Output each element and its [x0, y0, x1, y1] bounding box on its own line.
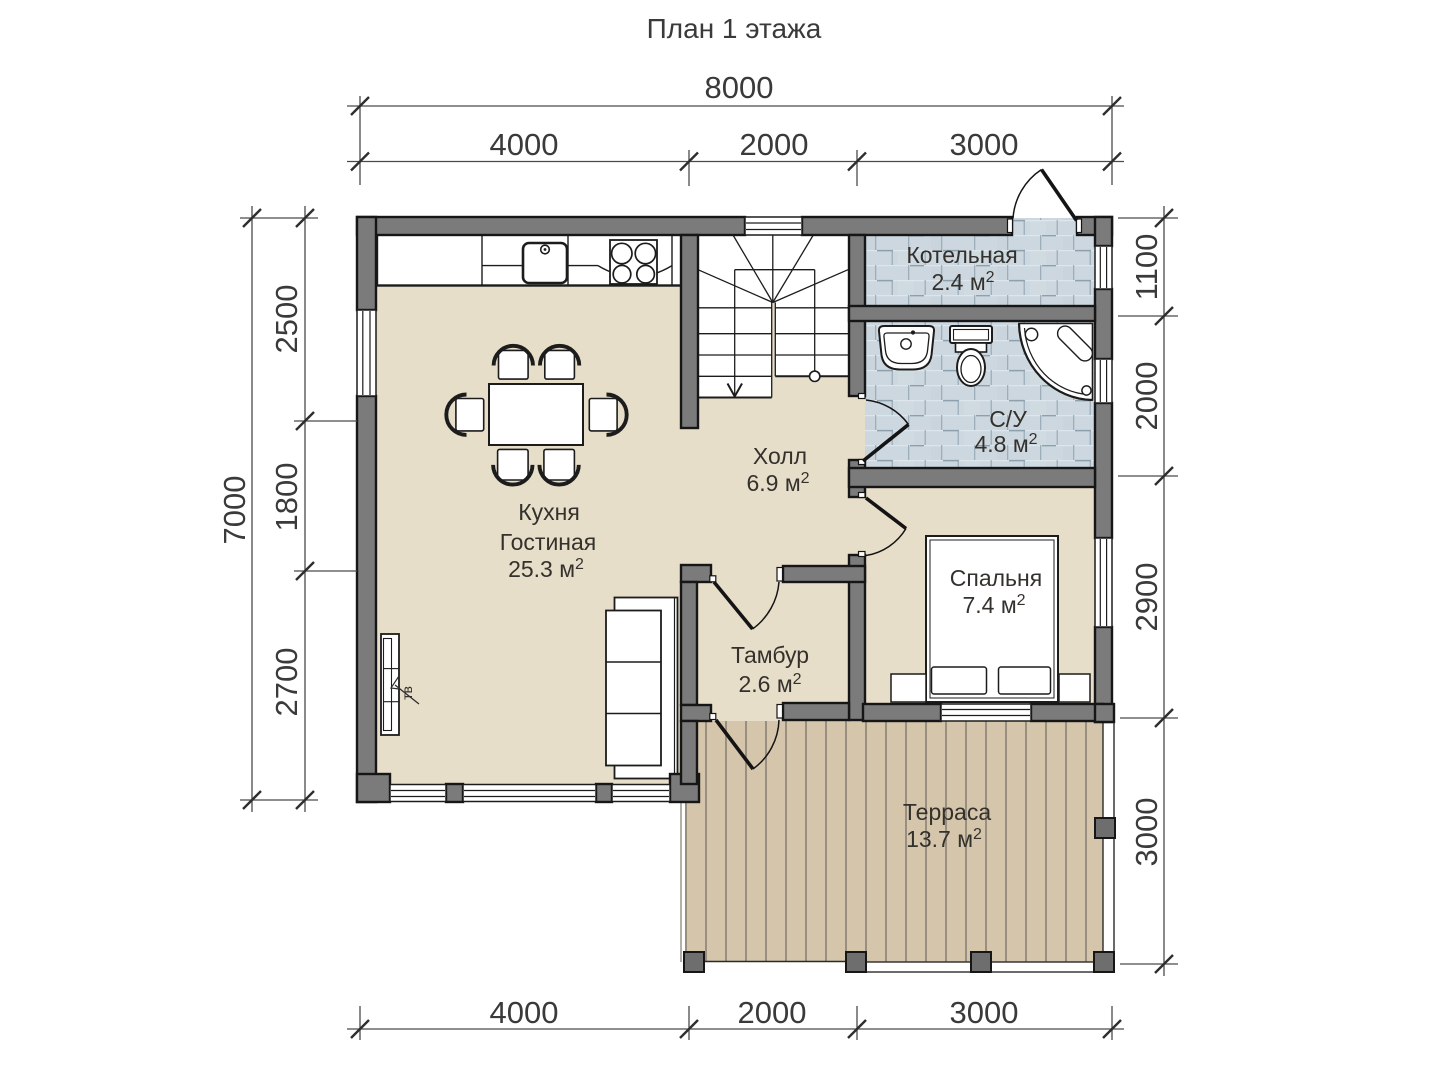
svg-text:7.4 м2: 7.4 м2 — [962, 592, 1025, 618]
svg-text:2.6 м2: 2.6 м2 — [738, 671, 801, 697]
svg-text:2000: 2000 — [738, 995, 807, 1030]
svg-text:6.9 м2: 6.9 м2 — [746, 470, 809, 496]
svg-text:Котельная: Котельная — [906, 242, 1017, 268]
svg-text:1800: 1800 — [269, 463, 304, 532]
svg-text:С/У: С/У — [989, 406, 1027, 432]
svg-text:тв: тв — [399, 686, 415, 700]
svg-text:Кухня: Кухня — [518, 499, 580, 525]
svg-text:25.3 м2: 25.3 м2 — [508, 556, 584, 582]
svg-text:1100: 1100 — [1129, 234, 1164, 301]
svg-text:2000: 2000 — [740, 127, 809, 162]
svg-text:3000: 3000 — [1129, 798, 1164, 867]
svg-text:8000: 8000 — [705, 70, 774, 105]
svg-text:4000: 4000 — [490, 127, 559, 162]
svg-text:План 1 этажа: План 1 этажа — [647, 13, 822, 44]
svg-text:2.4 м2: 2.4 м2 — [931, 269, 994, 295]
svg-text:13.7 м2: 13.7 м2 — [906, 826, 982, 852]
svg-text:2000: 2000 — [1129, 362, 1164, 431]
svg-text:3000: 3000 — [950, 995, 1019, 1030]
svg-text:2900: 2900 — [1129, 563, 1164, 632]
svg-text:Спальня: Спальня — [950, 565, 1042, 591]
svg-text:Гостиная: Гостиная — [500, 529, 597, 555]
svg-text:4000: 4000 — [490, 995, 559, 1030]
svg-text:2700: 2700 — [269, 648, 304, 717]
svg-text:Холл: Холл — [753, 443, 807, 469]
svg-text:4.8 м2: 4.8 м2 — [974, 431, 1037, 457]
svg-text:3000: 3000 — [950, 127, 1019, 162]
svg-text:7000: 7000 — [217, 476, 252, 545]
svg-text:Терраса: Терраса — [903, 799, 991, 825]
svg-text:2500: 2500 — [269, 285, 304, 354]
svg-text:Тамбур: Тамбур — [731, 642, 809, 668]
